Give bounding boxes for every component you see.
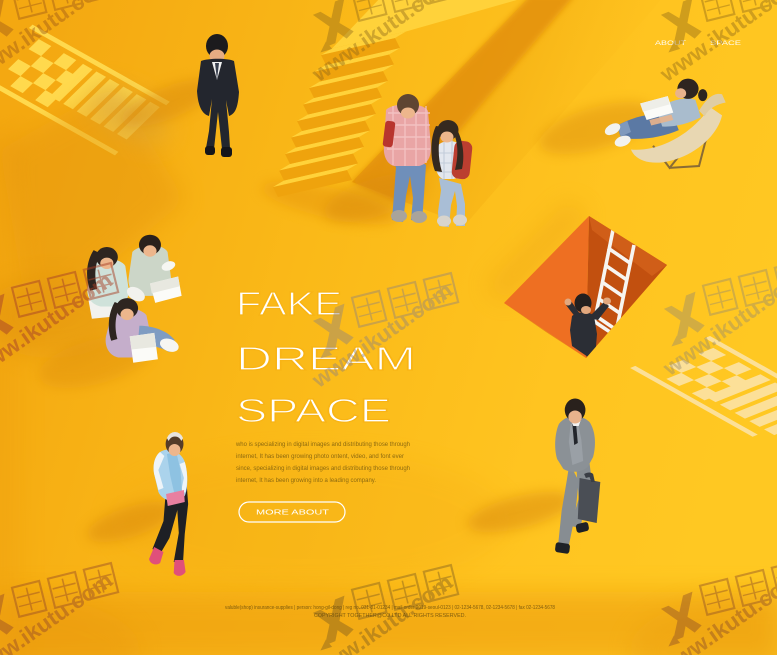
svg-text:SPACE: SPACE [236,392,391,429]
svg-text:internet, It has been growing: internet, It has been growing into a lea… [236,477,376,484]
svg-text:who is specializing in digital: who is specializing in digital images an… [235,441,410,448]
svg-text:MORE ABOUT: MORE ABOUT [256,508,330,517]
svg-text:internet, It has been growing: internet, It has been growing photo onte… [236,453,405,460]
svg-text:COPYRIGHT TOGETHER@CO.LTD ALL: COPYRIGHT TOGETHER@CO.LTD ALL RIGHTS RES… [314,613,466,619]
svg-text:since, specializing in digital: since, specializing in digital images an… [236,465,410,472]
svg-text:valuble(shop) insurance-suppli: valuble(shop) insurance-supplies | perso… [225,605,555,611]
svg-text:FAKE: FAKE [236,285,342,322]
